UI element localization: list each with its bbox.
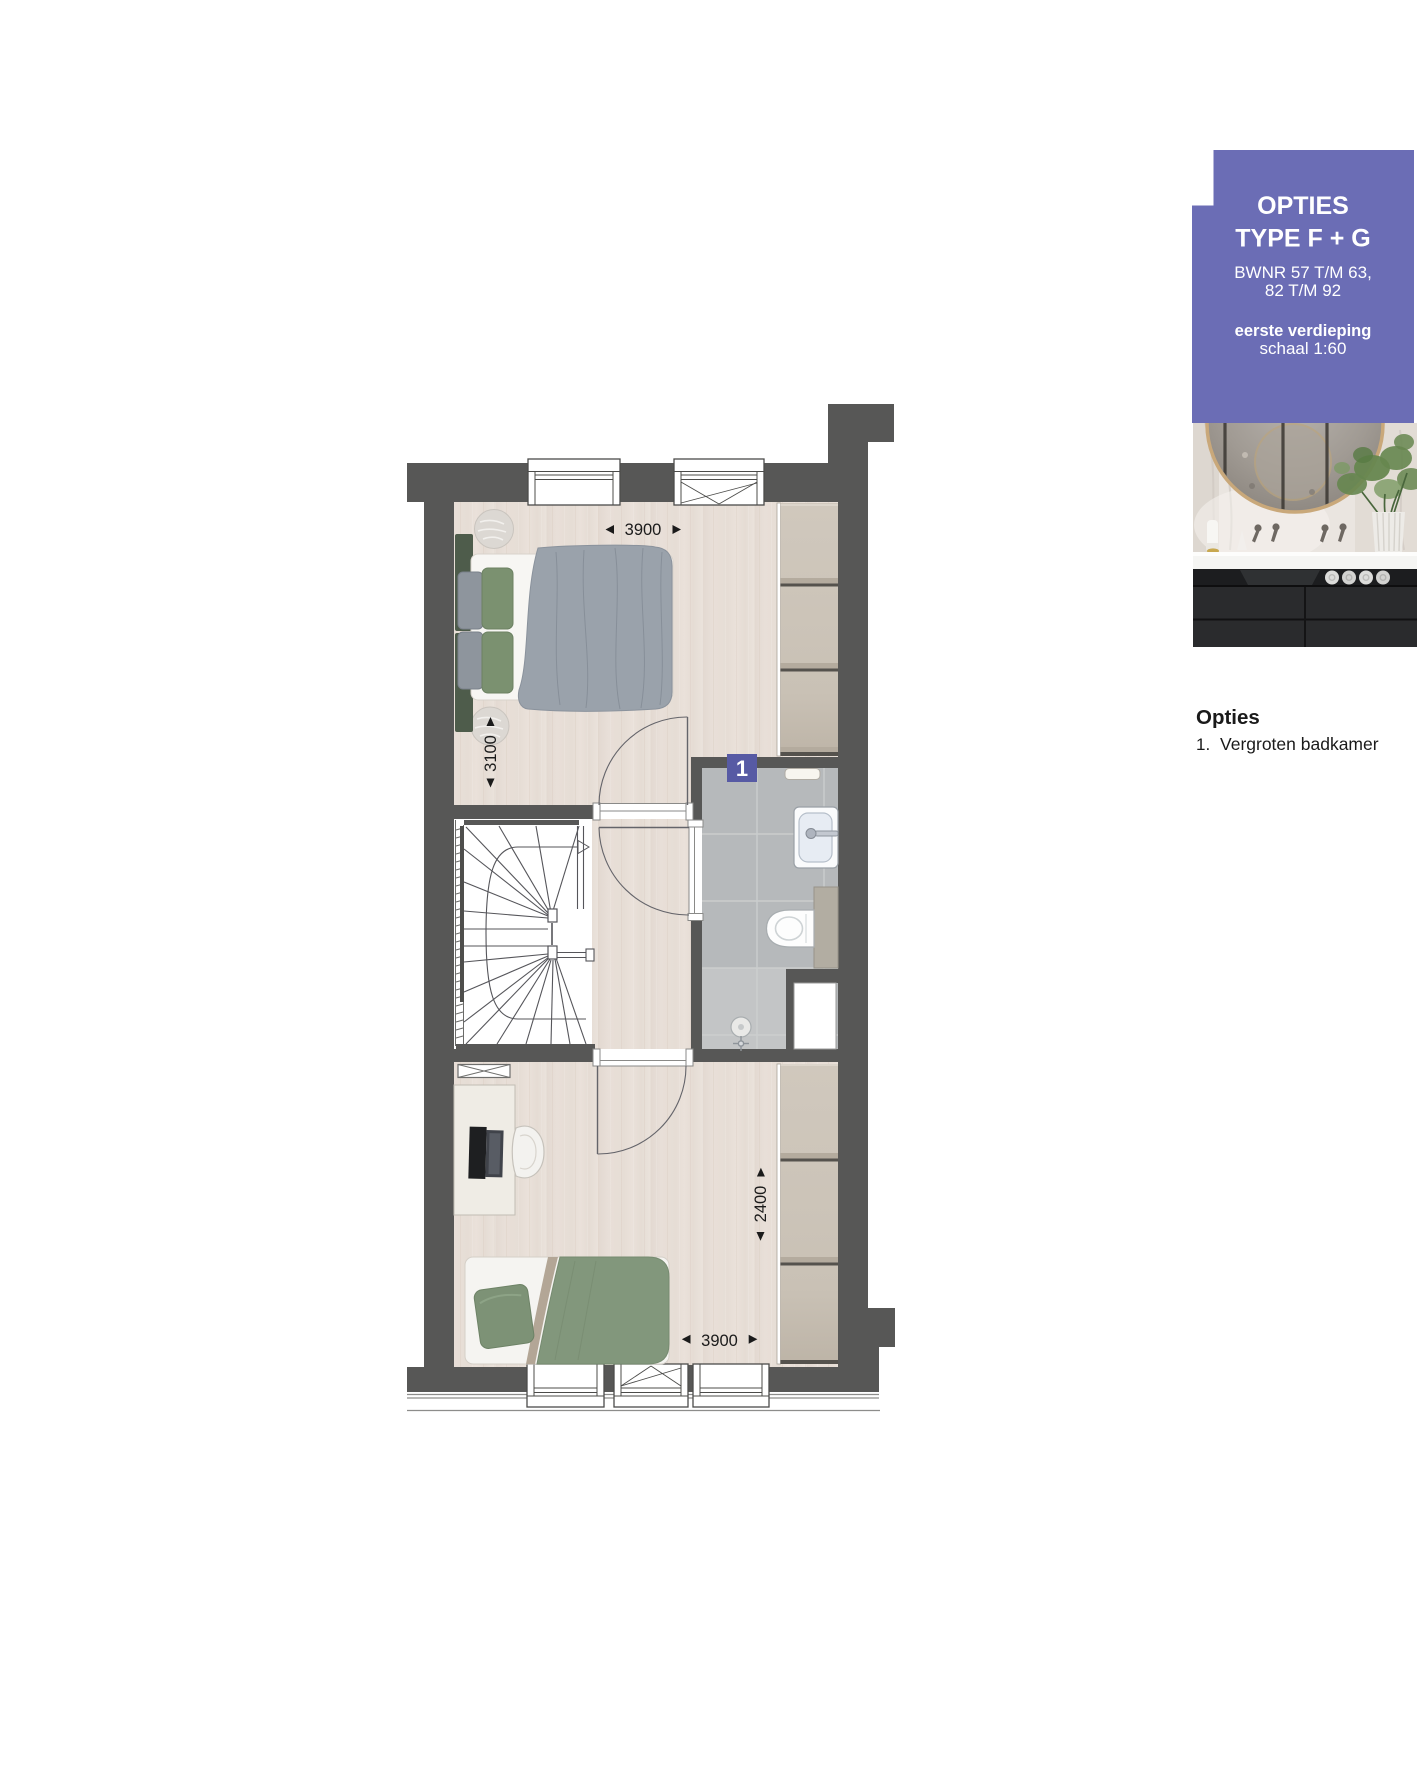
svg-text:3900: 3900 xyxy=(701,1332,738,1350)
svg-text:1: 1 xyxy=(736,756,748,781)
svg-text:OPTIES: OPTIES xyxy=(1257,192,1349,220)
svg-text:schaal 1:60: schaal 1:60 xyxy=(1260,339,1347,358)
svg-text:eerste verdieping: eerste verdieping xyxy=(1235,322,1372,340)
svg-text:82 T/M 92: 82 T/M 92 xyxy=(1265,281,1341,300)
svg-text:Vergroten badkamer: Vergroten badkamer xyxy=(1220,734,1379,754)
svg-text:3900: 3900 xyxy=(625,521,662,539)
svg-text:1.: 1. xyxy=(1196,735,1210,754)
svg-text:3100: 3100 xyxy=(482,735,500,772)
svg-text:BWNR 57 T/M 63,: BWNR 57 T/M 63, xyxy=(1234,263,1372,282)
svg-text:Opties: Opties xyxy=(1196,706,1260,729)
svg-text:2400: 2400 xyxy=(752,1186,770,1223)
svg-text:TYPE F + G: TYPE F + G xyxy=(1235,225,1370,253)
